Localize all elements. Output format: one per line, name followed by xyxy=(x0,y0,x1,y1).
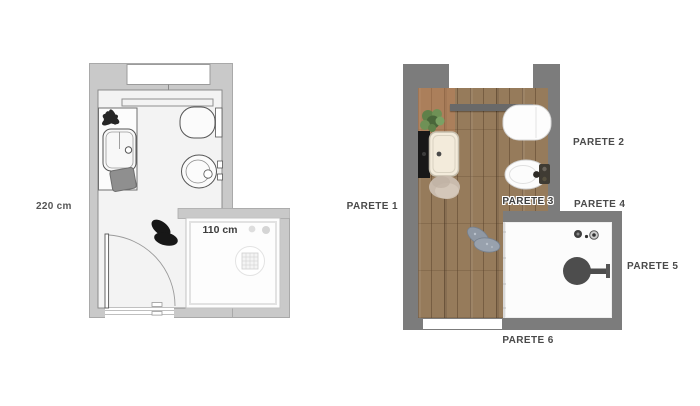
bidet-faucet xyxy=(204,170,212,178)
shower-control-left xyxy=(249,226,256,233)
toilet xyxy=(503,105,551,140)
shower-head-icon xyxy=(563,257,610,285)
wall-label-parete-1: PARETE 1 xyxy=(340,201,398,212)
toilet-bowl xyxy=(180,107,215,138)
door-leaf xyxy=(105,234,109,308)
window xyxy=(127,65,210,85)
left-floor-plan: 110 cm xyxy=(89,63,290,318)
door-latch-top xyxy=(152,303,162,307)
shower-controls xyxy=(574,230,598,239)
wall-label-parete-6: PARETE 6 xyxy=(495,335,561,346)
sink-drain xyxy=(437,152,442,157)
bidet-bracket-top xyxy=(218,161,223,168)
wall-label-parete-4: PARETE 4 xyxy=(574,199,625,210)
vanity-knob xyxy=(422,152,426,156)
drain-icon xyxy=(242,253,258,269)
door-latch-bottom xyxy=(152,312,162,316)
wall-label-parete-5: PARETE 5 xyxy=(627,261,678,272)
slippers-icon xyxy=(464,224,501,254)
sink-faucet xyxy=(125,147,131,153)
shower-control-right xyxy=(262,226,270,234)
door-opening xyxy=(105,308,174,318)
room-width-label: 220 cm xyxy=(36,201,72,212)
stool xyxy=(109,167,136,192)
shower-top-wall xyxy=(178,209,290,219)
floor-plan-canvas: 110 cm 220 cm xyxy=(0,0,700,406)
plant-icon xyxy=(420,109,445,132)
toilet-tank xyxy=(216,108,223,137)
wall-label-parete-3: PARETE 3 xyxy=(499,196,557,207)
shower-glass-ticks xyxy=(503,232,506,308)
wall-label-parete-2: PARETE 2 xyxy=(573,137,624,148)
shower-width-label: 110 cm xyxy=(202,224,237,236)
rug xyxy=(429,176,460,200)
bidet-bracket-bottom xyxy=(218,174,223,180)
